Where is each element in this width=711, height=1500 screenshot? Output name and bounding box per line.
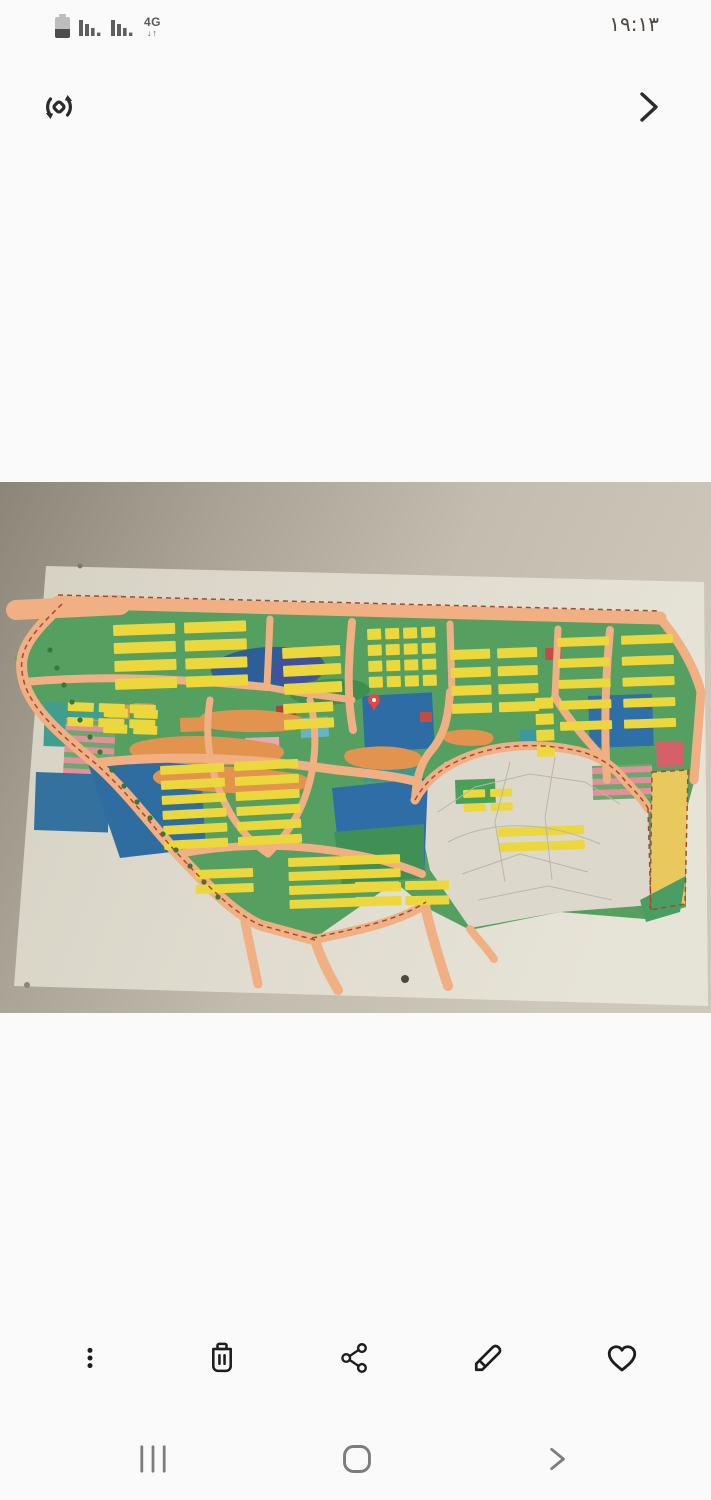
more-options-button[interactable] (66, 1330, 114, 1386)
battery-icon (55, 14, 70, 38)
network-4g-label: 4G (144, 16, 161, 28)
chevron-back-icon (542, 1442, 572, 1476)
phone-screen: 4G ↓↑ ۱۹:۱۳ (0, 0, 711, 1500)
next-button[interactable] (624, 82, 674, 132)
network-4g-icon: 4G ↓↑ (144, 16, 161, 38)
home-button[interactable] (333, 1432, 381, 1486)
recents-icon (137, 1442, 169, 1476)
share-icon (338, 1340, 372, 1376)
photo-viewer[interactable] (0, 482, 711, 1013)
chevron-right-icon (629, 85, 669, 129)
signal-icon-sim1 (78, 14, 102, 38)
recents-button[interactable] (129, 1432, 177, 1486)
signal-icon-sim2 (110, 14, 134, 38)
rotate-button[interactable] (34, 82, 84, 132)
network-arrows-icon: ↓↑ (147, 29, 158, 38)
back-button[interactable] (533, 1432, 581, 1486)
map-photo (0, 482, 711, 1013)
delete-button[interactable] (198, 1330, 246, 1386)
status-icons: 4G ↓↑ (55, 14, 161, 38)
home-icon (340, 1442, 374, 1476)
navigation-bar (0, 1432, 711, 1492)
share-button[interactable] (331, 1330, 379, 1386)
favorite-button[interactable] (598, 1330, 646, 1386)
more-vertical-icon (77, 1341, 103, 1375)
pencil-icon (469, 1339, 507, 1377)
trash-icon (204, 1339, 240, 1377)
status-bar: 4G ↓↑ ۱۹:۱۳ (0, 0, 711, 48)
heart-icon (604, 1340, 640, 1376)
edit-button[interactable] (464, 1330, 512, 1386)
rotate-icon (37, 85, 81, 129)
clock: ۱۹:۱۳ (609, 12, 659, 36)
bottom-toolbar (0, 1330, 711, 1390)
